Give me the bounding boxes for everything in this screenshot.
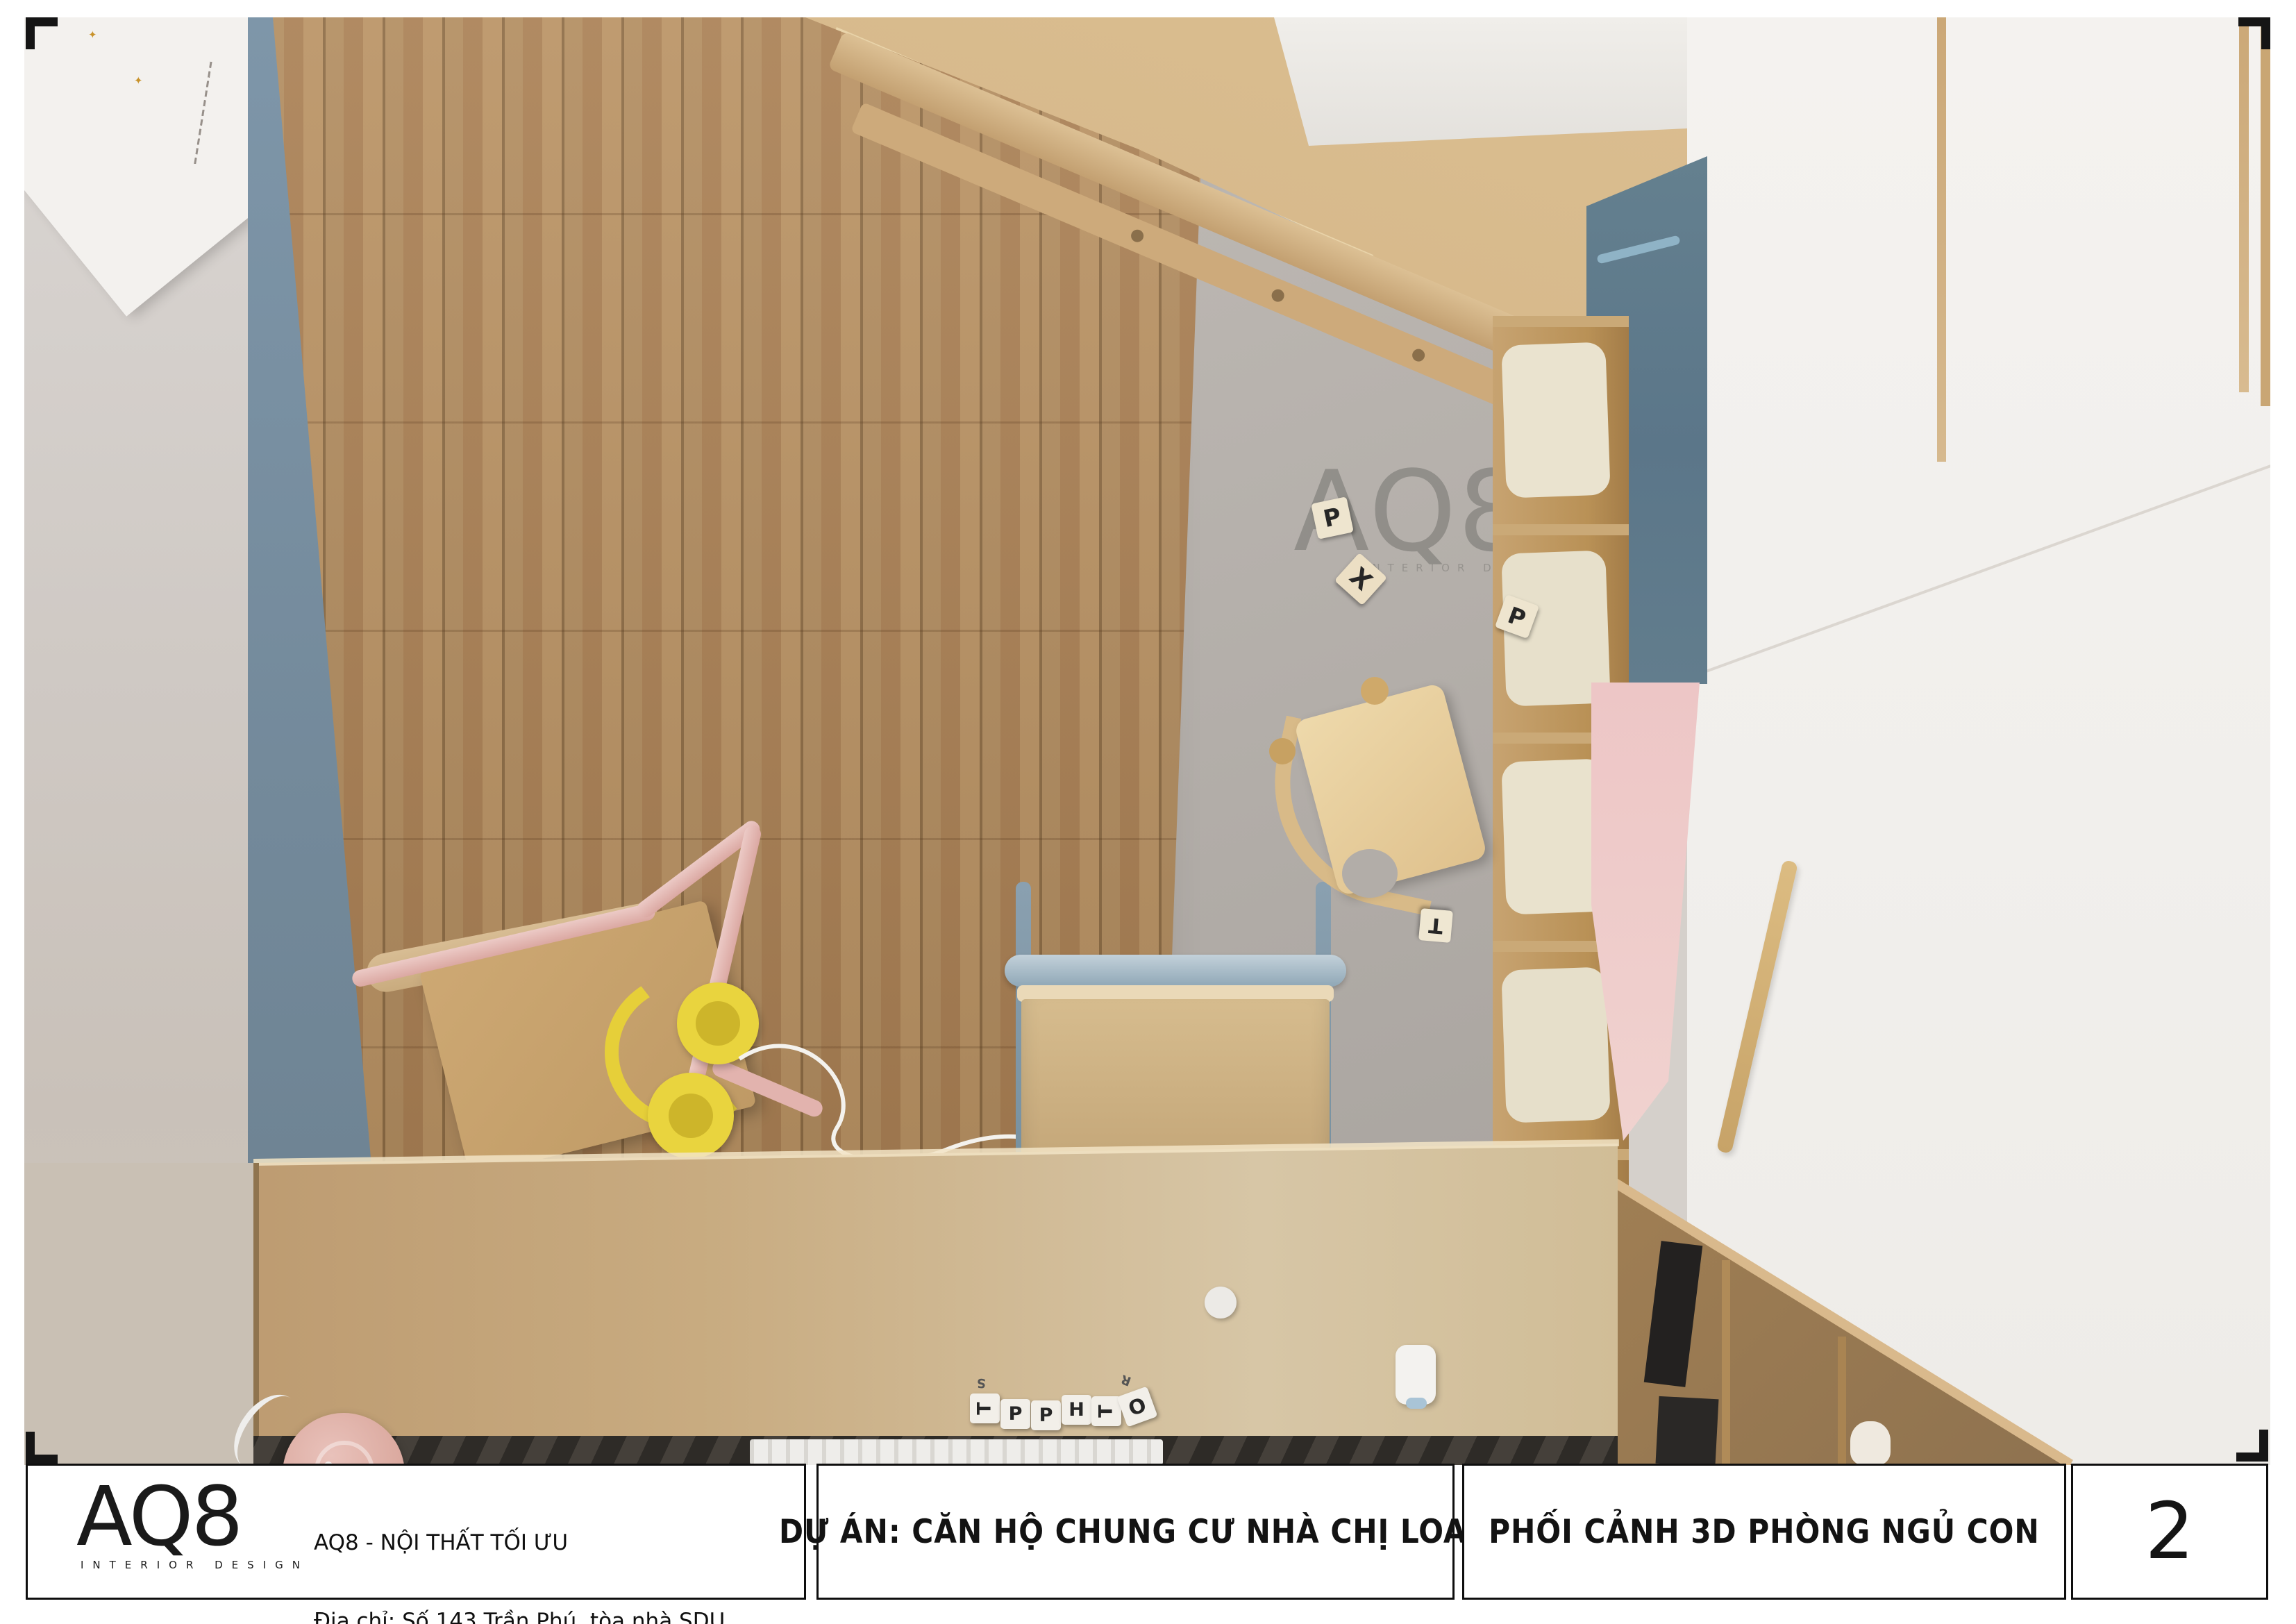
block-letter: X — [1344, 562, 1377, 596]
block-letter: T — [974, 1402, 996, 1414]
company-info: AQ8 - NỘI THẤT TỐI ƯU Địa chỉ: Số 143 Tr… — [314, 1478, 725, 1624]
company-name: AQ8 - NỘI THẤT TỐI ƯU — [314, 1530, 725, 1557]
shelf-board — [1493, 316, 1629, 327]
bottle-cap — [1406, 1398, 1427, 1409]
desk-letter-block: T — [1091, 1396, 1121, 1426]
crop-mark-bottom-right — [2236, 1430, 2268, 1462]
aq8-logo-text: AQ8 — [76, 1475, 309, 1557]
company-address: Địa chỉ: Số 143 Trần Phú, tòa nhà SDU — [314, 1609, 725, 1624]
block-letter: P — [1009, 1403, 1023, 1425]
block-letter: T — [1096, 1405, 1117, 1417]
sheet-number: 2 — [2073, 1466, 2266, 1598]
storage-bin — [1501, 966, 1611, 1123]
render-3d-view: ✦ ✦ AQ8 INTERIOR DESIGN — [24, 17, 2270, 1465]
block-letter: P — [1505, 601, 1530, 633]
block-letter: T — [1427, 913, 1443, 939]
title-block-view-cell: PHỐI CẢNH 3D PHÒNG NGỦ CON — [1462, 1464, 2066, 1600]
lower-left-wall — [24, 1163, 260, 1465]
storage-bin — [1501, 342, 1611, 498]
star-icon: ✦ — [134, 74, 143, 87]
stool-handle-hole — [1342, 849, 1398, 898]
desk-letter-block: H — [1062, 1395, 1091, 1425]
block-letter: O — [1125, 1393, 1150, 1421]
wardrobe-seam — [2239, 17, 2249, 392]
radiator — [750, 1439, 1163, 1465]
shelf-board — [1493, 524, 1629, 535]
block-top-letter: S — [977, 1375, 987, 1390]
block-letter: P — [1039, 1405, 1053, 1426]
stool-leg-knob — [1269, 738, 1296, 764]
ladder-hole — [1270, 287, 1287, 304]
wardrobe-edge — [2261, 17, 2270, 406]
blue-chair-backrest — [1005, 955, 1346, 987]
books-black — [1656, 1396, 1719, 1465]
shelf-divider — [1722, 1260, 1730, 1465]
presentation-sheet: ✦ ✦ AQ8 INTERIOR DESIGN — [0, 0, 2296, 1624]
toy-white — [1850, 1421, 1891, 1465]
desk-left-edge — [253, 1163, 259, 1436]
view-title: PHỐI CẢNH 3D PHÒNG NGỦ CON — [1489, 1513, 2040, 1551]
project-title: DỰ ÁN: CĂN HỘ CHUNG CƯ NHÀ CHỊ LOAN — [779, 1513, 1492, 1551]
lamp-inner-ring — [315, 1441, 374, 1465]
white-ball — [1205, 1287, 1237, 1319]
crop-mark-top-right — [2238, 17, 2270, 49]
rug-letter-block: T — [1418, 908, 1453, 943]
title-block-page-cell: 2 — [2071, 1464, 2268, 1600]
rug-letter-block: P — [1311, 496, 1354, 539]
ladder-hole — [1129, 228, 1146, 244]
aq8-logo: AQ8 INTERIOR DESIGN — [76, 1475, 309, 1571]
crop-mark-top-left — [26, 17, 58, 49]
wardrobe-white — [1687, 17, 2270, 1465]
wardrobe-seam — [1937, 17, 1946, 462]
shelf-divider — [1838, 1337, 1846, 1465]
cabinet-handle — [1596, 235, 1681, 264]
desk-letter-block: P — [1031, 1400, 1061, 1430]
desk-letter-block: P — [1000, 1399, 1030, 1429]
block-letter: H — [1069, 1399, 1084, 1421]
ladder-hole — [1410, 347, 1427, 364]
water-bottle — [1396, 1345, 1436, 1405]
headphone-cup-inner — [669, 1094, 713, 1138]
star-icon: ✦ — [88, 28, 97, 41]
desk-letter-block: T — [970, 1393, 1000, 1423]
title-block-project-cell: DỰ ÁN: CĂN HỘ CHUNG CƯ NHÀ CHỊ LOAN — [816, 1464, 1455, 1600]
aq8-logo-tagline: INTERIOR DESIGN — [81, 1559, 309, 1571]
block-letter: P — [1321, 503, 1344, 533]
crop-mark-bottom-left — [26, 1432, 58, 1464]
title-block-company-cell: AQ8 INTERIOR DESIGN AQ8 - NỘI THẤT TỐI Ư… — [26, 1464, 806, 1600]
stool-leg-knob — [1361, 677, 1389, 705]
